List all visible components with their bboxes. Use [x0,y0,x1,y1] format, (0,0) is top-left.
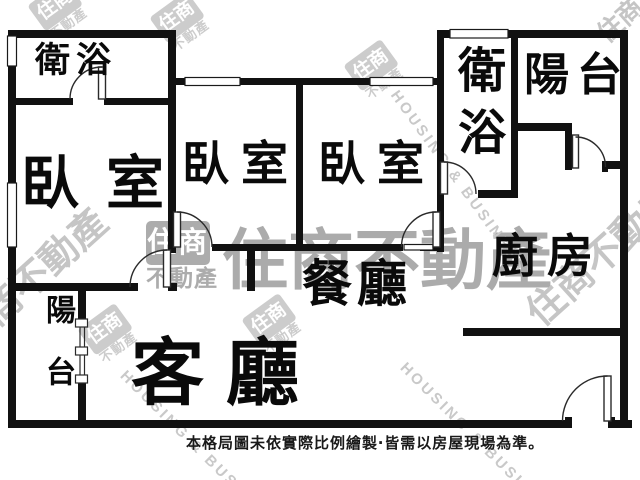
wall-bedroom1-bottom [8,283,138,291]
floor-plan: 住商 不動產 住商 不動產 住商 不動產 住商 不動產 住商 不動產 住商 不動… [0,0,640,480]
room-label-kitchen: 廚房 [492,233,602,279]
wall-bottom-outer [8,420,572,428]
wall-balcony-divider-top [78,291,86,322]
room-label-dining: 餐廳 [302,259,412,309]
room-label-bedroom-left: 臥室 [21,155,191,213]
room-label-balcony-top-right: 陽台 [524,52,630,97]
door-bedroom-middle [174,212,213,247]
wall-bedrooms-bottom [212,244,403,251]
wall-bathroom2-right [511,30,518,198]
wall-kitchen-living-divider [463,328,628,336]
room-label-bathroom-top-left: 衛浴 [35,43,117,78]
wall-bathroom1-bottom [8,98,73,105]
window-bedroom3 [370,78,433,86]
window-bathroom2 [450,30,508,39]
wall-balcony2-step [565,123,572,170]
room-label-living: 客廳 [131,337,321,410]
wall-top-left [8,30,176,38]
wall-dining-left [247,244,255,291]
door-balcony-top-right [573,135,606,168]
window-bedroom1 [8,183,17,247]
door-bedroom-left [130,250,171,287]
entrance-jamb [565,417,572,428]
window-bathroom1 [8,36,17,66]
wall-balcony2-bottom [511,123,572,131]
room-label-balcony-left: 陽台 [42,294,72,418]
room-label-bedroom-right: 臥室 [318,140,436,187]
wall-bathroom1-bottom [104,98,176,105]
door-entrance [563,376,612,421]
disclaimer-text: 本格局圖未依實際比例繪製‧皆需以房屋現場為準。 [186,432,544,453]
window-bedroom2 [185,78,240,86]
room-label-bedroom-middle: 臥室 [182,140,300,187]
sliding-door-balcony-left [76,319,88,383]
room-label-bathroom-right: 衛浴 [452,45,500,169]
threshold-bedroom3 [404,245,433,251]
door-bedroom-right [402,212,441,247]
